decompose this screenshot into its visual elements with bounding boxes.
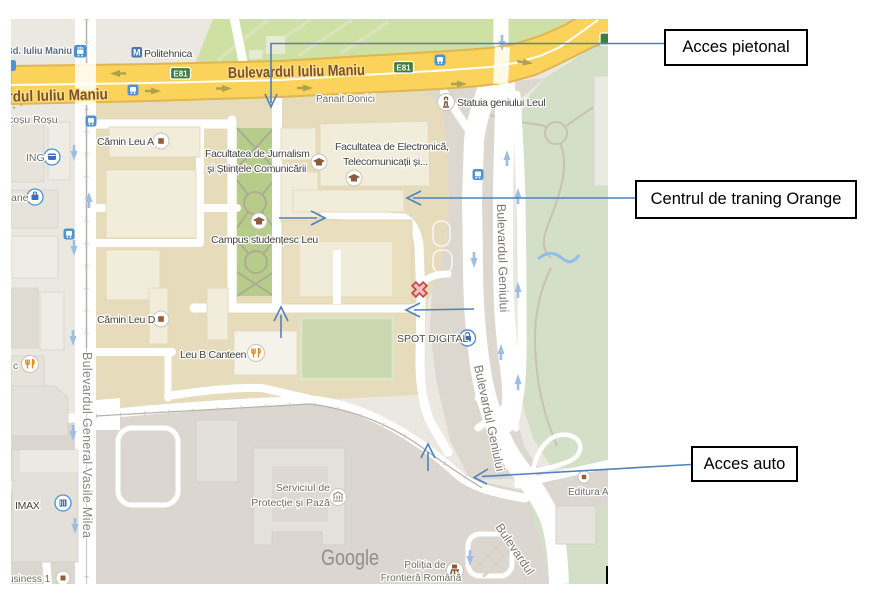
svg-text:Editura A: Editura A [568, 487, 609, 498]
svg-text:Campus studențesc Leu: Campus studențesc Leu [211, 234, 318, 246]
svg-text:usiness 1: usiness 1 [8, 574, 51, 585]
svg-text:Cămin Leu A: Cămin Leu A [97, 136, 154, 148]
svg-text:coșu Roșu: coșu Roșu [8, 114, 58, 126]
svg-text:c: c [13, 360, 18, 372]
svg-text:Statuia geniului Leul: Statuia geniului Leul [457, 97, 545, 109]
svg-text:și Științele Comunicării: și Științele Comunicării [207, 163, 306, 175]
svg-text:ING: ING [26, 152, 45, 164]
svg-text:Bulevardul Iuliu Maniu: Bulevardul Iuliu Maniu [228, 62, 365, 82]
svg-text:Cămin Leu D: Cămin Leu D [97, 314, 156, 326]
svg-text:Politehnica: Politehnica [144, 48, 193, 60]
svg-text:Bd. Iuliu Maniu: Bd. Iuliu Maniu [6, 45, 72, 57]
svg-text:Bulevardul General Vasile Mile: Bulevardul General Vasile Milea [80, 352, 94, 538]
svg-text:Frontieră Română: Frontieră Română [381, 573, 462, 584]
svg-text:Telecomunicații și...: Telecomunicații și... [343, 156, 428, 168]
svg-text:Poliția de: Poliția de [404, 560, 446, 571]
svg-text:ane: ane [11, 192, 29, 204]
svg-text:Facultatea de Jurnalism: Facultatea de Jurnalism [205, 148, 310, 160]
svg-text:E81: E81 [173, 69, 188, 78]
svg-text:Google: Google [321, 545, 379, 570]
svg-text:Serviciul de: Serviciul de [276, 482, 330, 494]
svg-text:Bulevardul Geniului: Bulevardul Geniului [494, 204, 511, 313]
svg-text:IMAX: IMAX [15, 500, 40, 512]
svg-text:Leu B Canteen: Leu B Canteen [180, 349, 247, 361]
svg-text:E81: E81 [396, 63, 411, 72]
svg-text:Facultatea de Electronică,: Facultatea de Electronică, [335, 141, 449, 153]
svg-text:SPOT DIGITAL: SPOT DIGITAL [397, 333, 469, 345]
svg-text:Panait Donici: Panait Donici [316, 94, 375, 105]
svg-text:Protecție și Pază: Protecție și Pază [251, 497, 330, 509]
svg-text:ardul Iuliu Maniu: ardul Iuliu Maniu [0, 86, 108, 106]
svg-text:M: M [133, 48, 141, 58]
